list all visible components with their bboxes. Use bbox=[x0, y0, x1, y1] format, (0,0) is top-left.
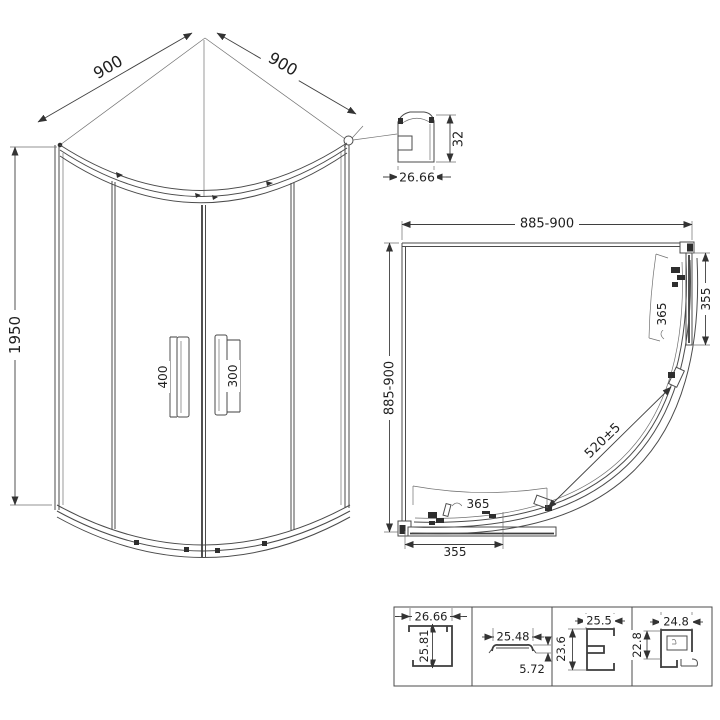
dim-profile3-width: 25.5 bbox=[586, 614, 612, 628]
front-elevation-view: 900 900 1950 400 300 bbox=[6, 33, 363, 558]
profile-detail-3: 25.5 23.6 bbox=[554, 613, 625, 670]
plan-view: 885-900 885-900 355 355 520±5 365 365 bbox=[383, 217, 714, 560]
dim-handle-right: 300 bbox=[226, 365, 240, 388]
arc-length-symbol bbox=[661, 329, 664, 339]
drawing-canvas: 900 900 1950 400 300 32 26.66 bbox=[0, 0, 720, 720]
technical-drawing: 900 900 1950 400 300 32 26.66 bbox=[0, 0, 720, 720]
dim-front-height: 1950 bbox=[6, 316, 24, 354]
dim-bottom-panel: 355 bbox=[444, 545, 467, 559]
dim-profile4-height: 22.8 bbox=[630, 632, 644, 658]
profile-detail-1: 26.66 25.81 bbox=[395, 608, 467, 668]
profile-detail-4: 24.8 22.8 bbox=[630, 612, 703, 668]
top-rail-profile-detail: 32 26.66 bbox=[353, 112, 467, 185]
profile-detail-2: 25.48 5.72 bbox=[482, 628, 551, 676]
dim-profile1-height: 25.81 bbox=[417, 630, 431, 663]
dim-door-arc-bottom: 365 bbox=[467, 497, 490, 511]
dim-profile2-width: 25.48 bbox=[497, 630, 530, 644]
profile-detail-strip: 26.66 25.81 25.48 5.72 bbox=[394, 607, 712, 686]
dim-door-arc-right: 365 bbox=[655, 303, 669, 326]
dim-plan-depth-left: 885-900 bbox=[383, 361, 398, 415]
arc-length-symbol bbox=[452, 503, 462, 506]
dim-profile4-width: 24.8 bbox=[663, 615, 689, 629]
dim-profile3-height: 23.6 bbox=[554, 636, 568, 662]
dim-handle-left: 400 bbox=[156, 366, 170, 389]
dim-profile2-height: 5.72 bbox=[519, 662, 545, 676]
dim-profile1-width: 26.66 bbox=[415, 610, 448, 624]
dim-rail-profile-height: 32 bbox=[452, 131, 467, 148]
dim-rail-profile-width: 26.66 bbox=[399, 170, 435, 185]
dim-plan-width-top: 885-900 bbox=[520, 217, 574, 232]
door-handle-left bbox=[177, 337, 189, 417]
dim-side-panel: 355 bbox=[699, 288, 713, 311]
dim-diagonal-opening: 520±5 bbox=[582, 420, 624, 461]
